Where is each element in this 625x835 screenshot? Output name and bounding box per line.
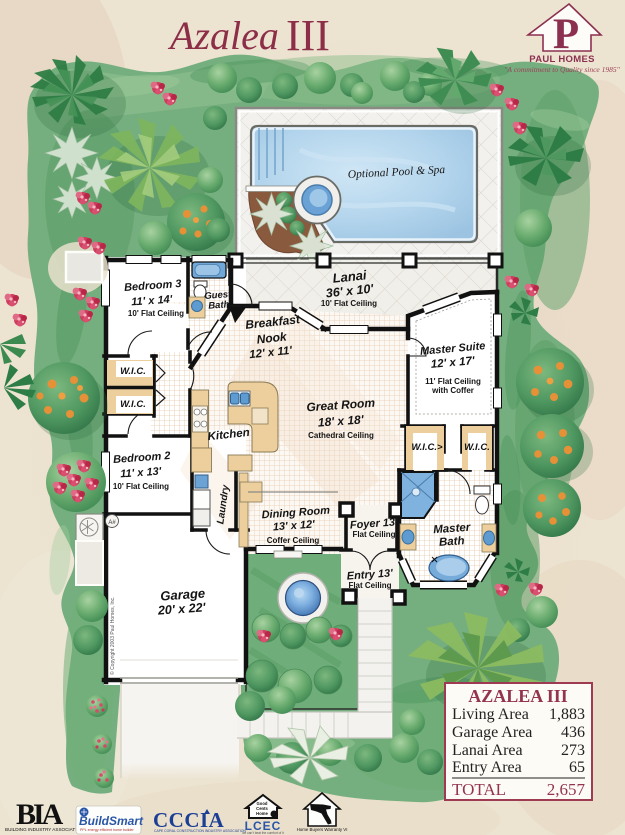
svg-text:10' Flat Ceiling: 10' Flat Ceiling: [321, 299, 377, 308]
svg-text:W.I.C.: W.I.C.: [120, 399, 146, 410]
svg-text:11' Flat Ceiling: 11' Flat Ceiling: [425, 377, 481, 386]
svg-text:III: III: [286, 11, 330, 60]
svg-text:Home Buyers Warranty VI: Home Buyers Warranty VI: [297, 827, 348, 832]
svg-text:PPL energy efficient home buil: PPL energy efficient home builder: [80, 828, 135, 832]
svg-text:Flat Ceiling: Flat Ceiling: [348, 581, 391, 590]
svg-text:AZALEA III: AZALEA III: [468, 686, 568, 706]
svg-text:10' Flat Ceiling: 10' Flat Ceiling: [128, 309, 184, 318]
svg-text:W.I.C.>: W.I.C.>: [411, 442, 443, 453]
svg-text:Lanai Area: Lanai Area: [452, 742, 523, 759]
svg-text:© Copyright 2003 Paul Homes, I: © Copyright 2003 Paul Homes, Inc.: [109, 597, 116, 675]
svg-text:Cathedral Ceiling: Cathedral Ceiling: [308, 431, 374, 440]
svg-text:2,657: 2,657: [547, 780, 586, 799]
svg-text:with Coffer: with Coffer: [431, 386, 474, 395]
svg-text:P: P: [553, 11, 579, 58]
svg-text:65: 65: [569, 759, 585, 776]
svg-text:1,883: 1,883: [549, 706, 585, 723]
svg-text:PAUL HOMES: PAUL HOMES: [529, 54, 594, 65]
svg-text:Azalea: Azalea: [167, 13, 279, 58]
svg-text:Coffer Ceiling: Coffer Ceiling: [267, 536, 320, 545]
svg-text:TOTAL: TOTAL: [452, 780, 506, 799]
svg-text:CAPE CORAL CONSTRUCTION INDUST: CAPE CORAL CONSTRUCTION INDUSTRY ASSOCIA…: [154, 829, 246, 833]
svg-text:BuildSmart: BuildSmart: [79, 814, 144, 828]
svg-text:Bath: Bath: [439, 535, 465, 549]
svg-text:W.I.C.: W.I.C.: [120, 366, 146, 377]
svg-text:436: 436: [561, 724, 585, 741]
svg-text:W.I.C.: W.I.C.: [464, 442, 490, 453]
svg-text:Living Area: Living Area: [452, 706, 529, 723]
svg-text:Flat Ceiling: Flat Ceiling: [352, 530, 395, 539]
svg-text:Garage Area: Garage Area: [452, 724, 532, 741]
svg-text:BUILDING INDUSTRY ASSOCIATION: BUILDING INDUSTRY ASSOCIATION: [5, 827, 83, 832]
svg-text:Entry Area: Entry Area: [452, 759, 522, 776]
svg-text:we can't beat the comfort of i: we can't beat the comfort of it: [242, 831, 284, 835]
svg-text:10' Flat Ceiling: 10' Flat Ceiling: [113, 482, 169, 491]
svg-text:A#: A#: [108, 520, 116, 526]
svg-text:Bath: Bath: [208, 299, 230, 311]
svg-text:273: 273: [561, 742, 585, 759]
svg-text:"A commitment to Quality since: "A commitment to Quality since 1985": [504, 65, 620, 74]
svg-text:Home: Home: [256, 811, 268, 816]
